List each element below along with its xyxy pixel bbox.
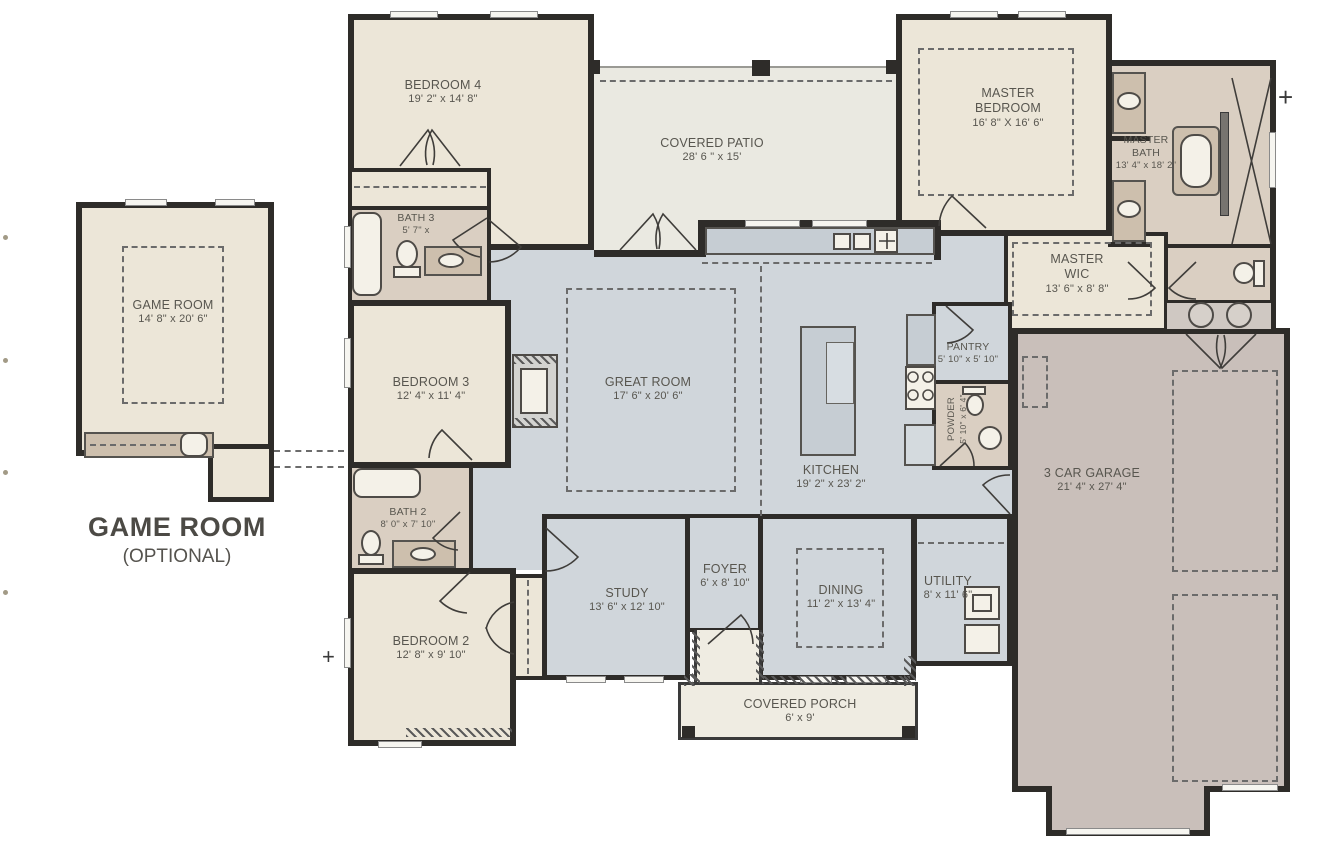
window xyxy=(566,676,606,683)
study-dims: 13' 6" x 12' 10" xyxy=(567,601,687,614)
toilet-closet-bowl xyxy=(1233,262,1255,284)
kitchen-range xyxy=(905,366,936,410)
powder-sink xyxy=(978,426,1002,450)
window xyxy=(125,199,167,206)
window xyxy=(812,220,867,227)
pantry-name: PANTRY xyxy=(934,341,1002,354)
mud-bench-area xyxy=(1164,300,1274,332)
porch-hatch xyxy=(904,656,916,686)
bath3-name: BATH 3 xyxy=(384,212,448,225)
powder-name: POWDER xyxy=(946,387,958,451)
game-room-name: GAME ROOM xyxy=(108,298,238,313)
room-label-master-wic: MASTER WIC 13' 6" x 8' 8" xyxy=(1028,252,1126,296)
window xyxy=(344,226,351,268)
fireplace-firebox xyxy=(520,368,548,414)
kitchen-ceiling-dashed-v xyxy=(760,266,762,516)
game-room-sink xyxy=(180,432,208,457)
optional-unit-title: GAME ROOM xyxy=(58,512,296,543)
room-label-bedroom4: BEDROOM 4 19' 2" x 14' 8" xyxy=(383,78,503,107)
wall-great-room-north xyxy=(594,250,706,257)
porch-post xyxy=(682,726,695,738)
patio-post xyxy=(752,60,770,76)
garage-door-opening xyxy=(1066,828,1190,835)
fireplace-hatch-top xyxy=(514,356,556,364)
room-label-powder: POWDER 5' 10" x 6' 4" xyxy=(946,387,968,451)
patio-post xyxy=(886,60,898,74)
porch-hatch xyxy=(692,632,700,684)
window xyxy=(390,11,438,18)
wall-kitchen-east-stub xyxy=(934,220,941,260)
bath2-tub xyxy=(353,468,421,498)
room-covered-patio-ext xyxy=(594,227,702,252)
covered-porch-name: COVERED PORCH xyxy=(735,697,865,712)
bath3-dims: 5' 7" x xyxy=(384,225,448,237)
master-bedroom-name: MASTER BEDROOM xyxy=(968,86,1048,117)
kitchen-dims: 19' 2" x 23' 2" xyxy=(771,478,891,491)
room-label-great-room: GREAT ROOM 17' 6" x 20' 6" xyxy=(588,375,708,404)
optional-unit-title-block: GAME ROOM (OPTIONAL) xyxy=(58,512,296,568)
toilet-closet-tank xyxy=(1253,260,1265,287)
garage-bay-dashed-2 xyxy=(1172,594,1278,782)
room-label-bedroom2: BEDROOM 2 12' 8" x 9' 10" xyxy=(371,634,491,663)
kitchen-sink-right xyxy=(853,233,871,250)
room-label-kitchen: KITCHEN 19' 2" x 23' 2" xyxy=(771,463,891,492)
covered-patio-dims: 28' 6 " x 15' xyxy=(632,151,792,164)
game-room-dims: 14' 8" x 20' 6" xyxy=(108,313,238,326)
window xyxy=(1018,11,1066,18)
powder-dims: 5' 10" x 6' 4" xyxy=(958,387,968,451)
bath2-name: BATH 2 xyxy=(371,506,445,519)
porch-hatch xyxy=(756,632,764,680)
room-label-foyer: FOYER 6' x 8' 10" xyxy=(689,562,761,591)
pantry-dims: 5' 10" x 5' 10" xyxy=(934,354,1002,366)
bath3-toilet-tank xyxy=(393,266,421,278)
kitchen-counter-north xyxy=(705,227,935,255)
window xyxy=(378,741,422,748)
room-label-garage: 3 CAR GARAGE 21' 4" x 27' 4" xyxy=(1012,466,1172,495)
closet-bedroom-2 xyxy=(512,574,546,680)
porch-post xyxy=(902,726,915,738)
bath3-tub xyxy=(352,212,382,296)
room-label-dining: DINING 11' 2" x 13' 4" xyxy=(781,583,901,612)
survey-cross-marker: + xyxy=(1278,84,1293,110)
wall-patio-step xyxy=(698,220,705,257)
bedroom2-dims: 12' 8" x 9' 10" xyxy=(371,649,491,662)
margin-dot xyxy=(3,358,8,363)
fireplace-hatch-bottom xyxy=(514,418,556,426)
kitchen-cabinet-east xyxy=(906,314,936,366)
porch-entry-alcove xyxy=(694,630,762,686)
shower-glass-panel xyxy=(1220,112,1229,216)
room-label-master-bath: MASTER BATH 13' 4" x 18' 2" xyxy=(1106,134,1186,171)
porch-hatch xyxy=(762,676,910,684)
window xyxy=(624,676,664,683)
master-bedroom-dims: 16' 8" X 16' 6" xyxy=(948,117,1068,130)
bath2-toilet-tank xyxy=(358,554,384,565)
powder-toilet-bowl xyxy=(966,394,984,416)
mud-sink-1 xyxy=(1188,302,1214,328)
window xyxy=(1269,132,1276,188)
margin-dot xyxy=(3,590,8,595)
bedroom2-name: BEDROOM 2 xyxy=(371,634,491,649)
kitchen-island-inner xyxy=(826,342,854,404)
bedroom3-name: BEDROOM 3 xyxy=(371,375,491,390)
covered-patio-name: COVERED PATIO xyxy=(632,136,792,151)
room-label-bedroom3: BEDROOM 3 12' 4" x 11' 4" xyxy=(371,375,491,404)
bath3-sink xyxy=(438,253,464,268)
bath2-sink xyxy=(410,547,436,561)
room-label-covered-patio: COVERED PATIO 28' 6 " x 15' xyxy=(632,136,792,165)
walkway-dashed-2 xyxy=(274,466,344,468)
great-room-dims: 17' 6" x 20' 6" xyxy=(588,390,708,403)
master-bath-sink-1 xyxy=(1117,92,1141,110)
great-room-name: GREAT ROOM xyxy=(588,375,708,390)
window xyxy=(950,11,998,18)
utility-dims: 8' x 11' 6" xyxy=(908,589,988,602)
closet-b2-rod-dashed xyxy=(527,580,529,674)
kitchen-fridge xyxy=(904,424,936,466)
room-label-game-room: GAME ROOM 14' 8" x 20' 6" xyxy=(108,298,238,327)
dining-name: DINING xyxy=(781,583,901,598)
window xyxy=(344,618,351,668)
patio-open-edge-dashed xyxy=(600,80,892,82)
bath2-dims: 8' 0" x 7' 10" xyxy=(371,519,445,531)
room-label-study: STUDY 13' 6" x 12' 10" xyxy=(567,586,687,615)
game-room-extension xyxy=(208,444,274,502)
master-bath-sink-2 xyxy=(1117,200,1141,218)
master-bath-dims: 13' 4" x 18' 2" xyxy=(1106,160,1186,172)
window xyxy=(490,11,538,18)
window xyxy=(344,338,351,388)
garage-bay-dashed-1 xyxy=(1172,370,1278,572)
margin-dot xyxy=(3,470,8,475)
master-bath-name: MASTER BATH xyxy=(1120,134,1172,160)
floor-plan: + + xyxy=(0,0,1324,841)
bath2-toilet-bowl xyxy=(361,530,381,556)
optional-unit-subtitle: (OPTIONAL) xyxy=(58,546,296,568)
dining-dims: 11' 2" x 13' 4" xyxy=(781,598,901,611)
garage-name: 3 CAR GARAGE xyxy=(1012,466,1172,481)
room-label-bath3: BATH 3 5' 7" x xyxy=(384,212,448,236)
window xyxy=(745,220,800,227)
margin-dot xyxy=(3,235,8,240)
room-label-bath2: BATH 2 8' 0" x 7' 10" xyxy=(371,506,445,530)
window xyxy=(215,199,255,206)
utility-name: UTILITY xyxy=(908,574,988,589)
kitchen-prep-sink xyxy=(874,229,898,253)
closet-b4-rod-dashed xyxy=(354,186,486,188)
foyer-dims: 6' x 8' 10" xyxy=(689,577,761,590)
hall-bedroom-wing-south xyxy=(471,466,547,570)
utility-shelf-dashed xyxy=(918,542,1004,544)
room-label-master-bedroom: MASTER BEDROOM 16' 8" X 16' 6" xyxy=(948,86,1068,130)
master-wic-dims: 13' 6" x 8' 8" xyxy=(1028,283,1126,296)
utility-washer xyxy=(964,624,1000,654)
patio-slab-hatch xyxy=(406,728,512,737)
patio-post xyxy=(588,60,600,74)
kitchen-ceiling-dashed-h xyxy=(702,262,932,264)
walkway-dashed-1 xyxy=(274,450,344,452)
bath3-toilet-bowl xyxy=(396,240,418,268)
survey-cross-marker: + xyxy=(322,646,335,668)
study-name: STUDY xyxy=(567,586,687,601)
kitchen-sink-left xyxy=(833,233,851,250)
room-label-pantry: PANTRY 5' 10" x 5' 10" xyxy=(934,341,1002,365)
room-label-covered-porch: COVERED PORCH 6' x 9' xyxy=(735,697,865,726)
room-label-utility: UTILITY 8' x 11' 6" xyxy=(908,574,988,603)
bedroom4-name: BEDROOM 4 xyxy=(383,78,503,93)
garage-door-opening xyxy=(1222,784,1278,791)
garage-dims: 21' 4" x 27' 4" xyxy=(1012,481,1172,494)
bedroom4-dims: 19' 2" x 14' 8" xyxy=(383,93,503,106)
mud-sink-2 xyxy=(1226,302,1252,328)
foyer-name: FOYER xyxy=(689,562,761,577)
bedroom3-dims: 12' 4" x 11' 4" xyxy=(371,390,491,403)
water-heater-dashed xyxy=(1022,356,1048,408)
kitchen-name: KITCHEN xyxy=(771,463,891,478)
covered-porch-dims: 6' x 9' xyxy=(735,712,865,725)
master-wic-name: MASTER WIC xyxy=(1046,252,1108,283)
